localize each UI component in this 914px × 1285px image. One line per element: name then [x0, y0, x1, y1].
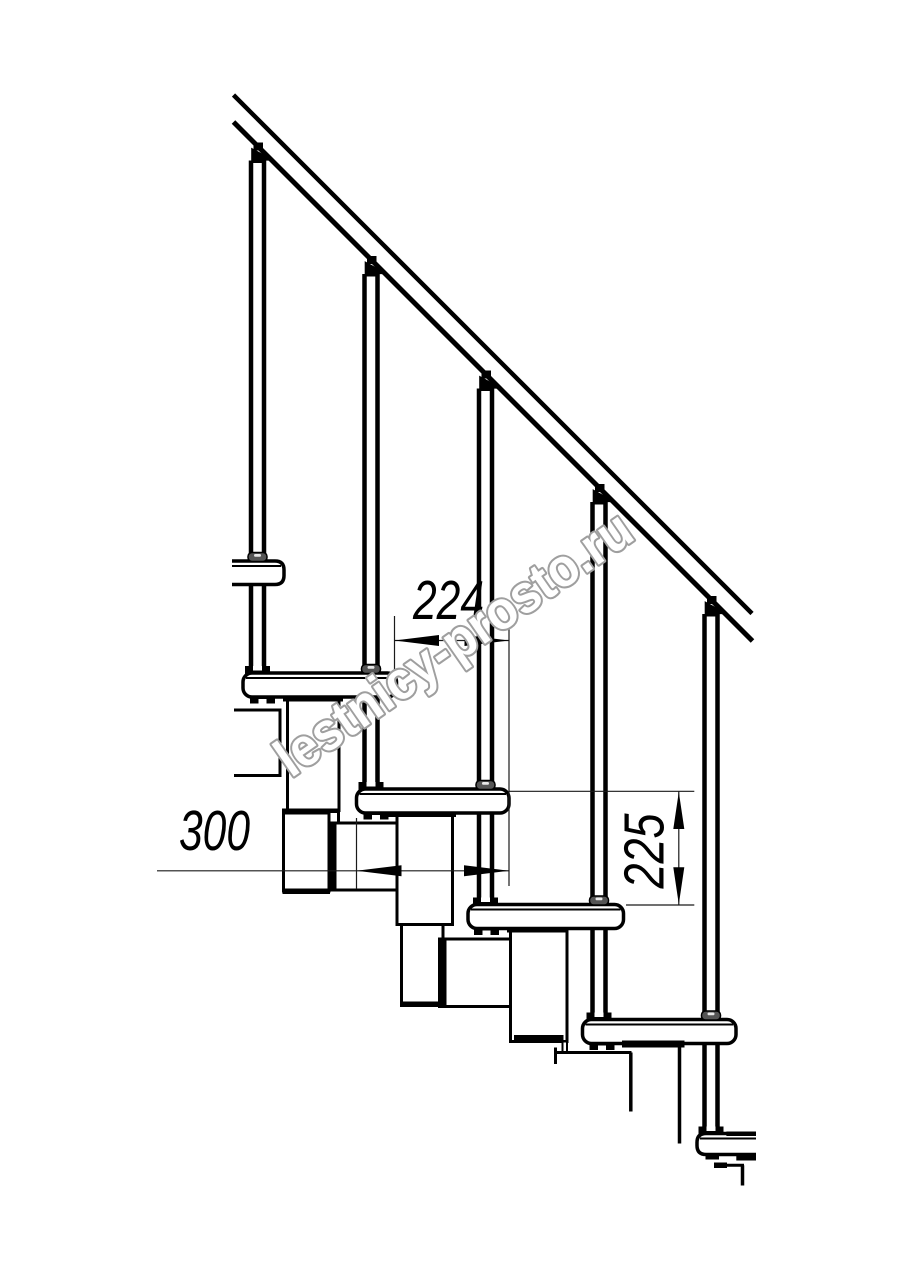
svg-text:225: 225: [613, 813, 677, 889]
svg-text:300: 300: [179, 799, 250, 863]
